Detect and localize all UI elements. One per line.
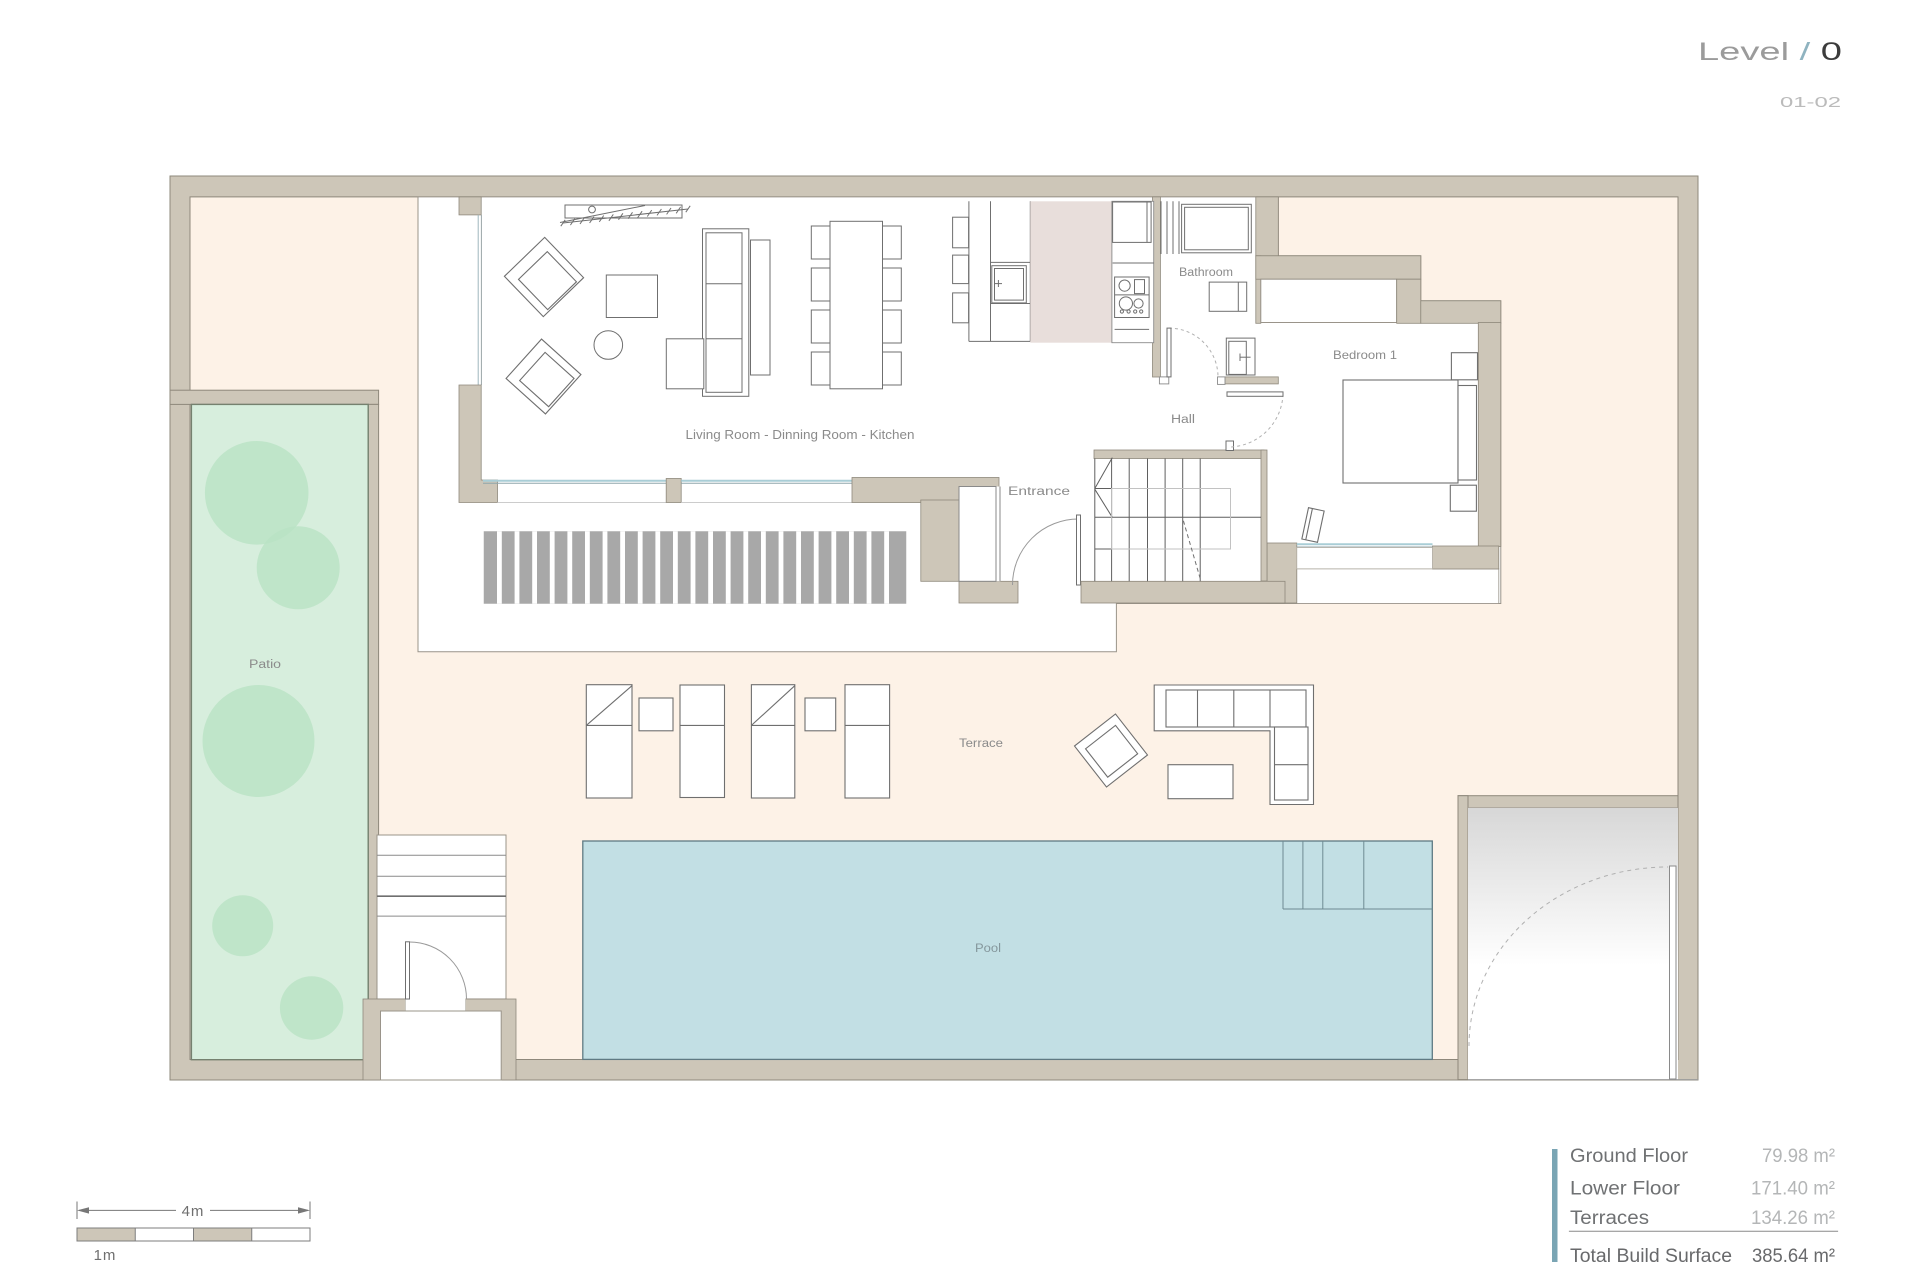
svg-text:Bathroom: Bathroom <box>1179 267 1233 279</box>
svg-text:Bedroom 1: Bedroom 1 <box>1333 348 1397 362</box>
svg-text:Total Build Surface: Total Build Surface <box>1570 1246 1732 1267</box>
svg-text:Entrance: Entrance <box>1008 486 1070 498</box>
svg-text:134.26 m²: 134.26 m² <box>1751 1208 1835 1229</box>
svg-text:Level / 0: Level / 0 <box>1698 38 1842 66</box>
svg-text:79.98 m²: 79.98 m² <box>1762 1146 1835 1167</box>
svg-text:171.40 m²: 171.40 m² <box>1751 1179 1835 1200</box>
svg-text:Lower Floor: Lower Floor <box>1570 1179 1681 1200</box>
svg-text:Hall: Hall <box>1171 414 1195 426</box>
svg-text:385.64 m²: 385.64 m² <box>1752 1246 1835 1267</box>
svg-text:Pool: Pool <box>975 943 1001 955</box>
svg-text:Terrace: Terrace <box>959 738 1003 750</box>
svg-text:4m: 4m <box>182 1203 205 1220</box>
svg-text:01-02: 01-02 <box>1780 95 1841 111</box>
svg-text:Terraces: Terraces <box>1570 1208 1649 1229</box>
svg-text:Patio: Patio <box>249 659 281 671</box>
svg-text:Ground Floor: Ground Floor <box>1570 1146 1689 1167</box>
svg-text:1m: 1m <box>94 1247 117 1264</box>
svg-text:Living Room - Dinning Room - K: Living Room - Dinning Room - Kitchen <box>686 427 915 442</box>
